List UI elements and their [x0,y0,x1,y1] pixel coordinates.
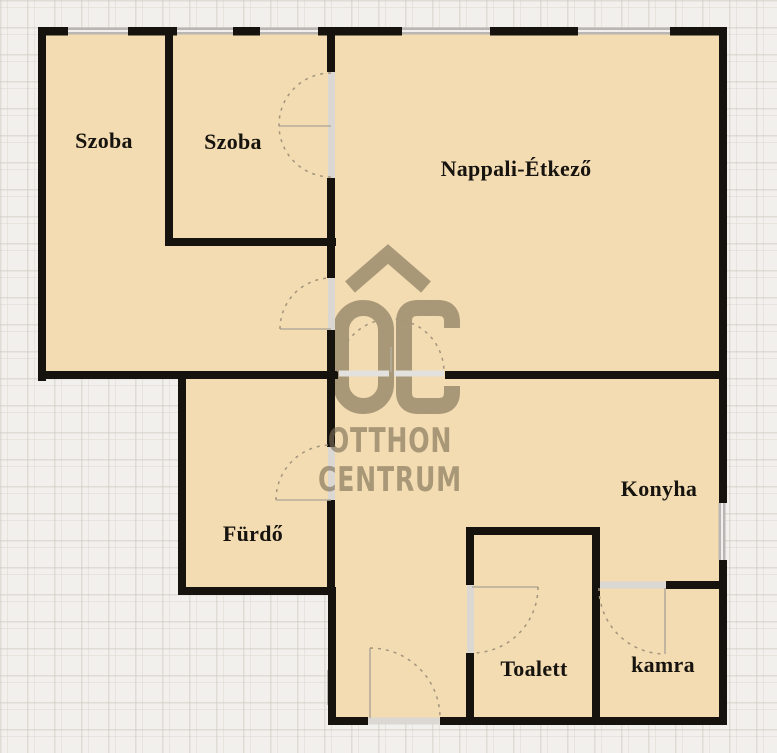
door-opening [328,72,335,178]
watermark-line-otthon: OTTHON [328,421,452,461]
wall-segment [466,527,474,585]
floor-plan: Szoba Szoba Nappali-Étkező Fürdő Konyha … [0,0,777,753]
window-pane-line [402,30,490,32]
wall-segment [38,27,46,381]
room-label-konyha: Konyha [621,476,697,502]
wall-segment [327,500,335,595]
wall-segment [327,178,335,278]
room-label-toalett: Toalett [500,656,567,682]
double-door-leaf-bar [394,371,444,377]
wall-segment [490,27,578,36]
wall-segment [165,27,173,246]
room-label-nappali-etkezo: Nappali-Étkező [441,156,592,182]
wall-segment [466,653,474,725]
wall-segment [178,587,336,595]
wall-segment [328,717,368,725]
window-pane-line [260,30,318,32]
window-pane-line [578,30,670,32]
wall-segment [666,581,727,589]
wall-segment [592,581,600,589]
double-door-leaf-bar [339,371,389,377]
wall-segment [327,27,335,72]
watermark-line-centrum: CENTRUM [318,460,462,500]
window-pane-line [721,503,723,560]
wall-segment [466,527,600,535]
room-label-szoba-1: Szoba [75,128,133,154]
wall-segment [165,238,336,246]
floor-plan-drawing [0,0,777,753]
wall-segment [328,587,336,725]
floor-furdo [182,377,331,592]
door-opening [600,582,666,589]
wall-segment [178,373,186,595]
door-opening [368,718,440,725]
wall-segment [38,371,338,379]
wall-segment [592,527,600,725]
wall-segment [233,27,260,36]
wall-segment [440,717,727,725]
room-label-kamra: kamra [631,652,695,678]
window-pane-line [68,30,128,32]
window-pane-line [177,30,233,32]
wall-segment [719,27,727,503]
wall-segment [445,371,727,379]
room-label-szoba-2: Szoba [204,129,262,155]
door-opening [328,278,335,330]
door-opening [467,585,474,653]
wall-segment [670,27,727,36]
room-label-furdo: Fürdő [223,521,283,547]
